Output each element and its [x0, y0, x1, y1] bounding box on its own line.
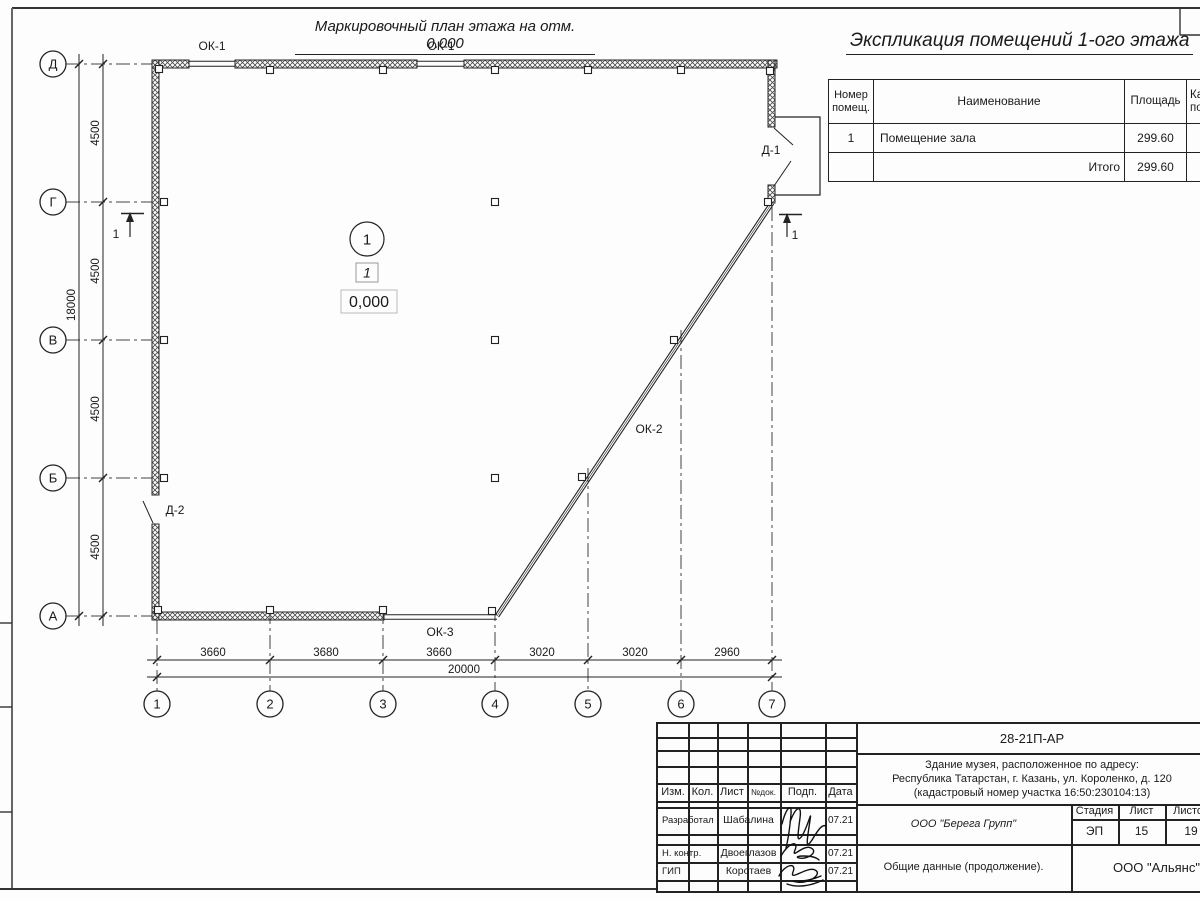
dim-text-3660: 3660	[200, 647, 226, 659]
plan-title-wrap: Маркировочный план этажа на отм. 0.000	[295, 18, 595, 55]
tb-line	[658, 737, 856, 739]
room-number: 1	[363, 232, 371, 249]
tb-address-line3: (кадастровый номер участка 16:50:230104:…	[914, 786, 1151, 800]
column	[492, 337, 499, 344]
exp-header-category-line2: по	[1190, 102, 1200, 115]
tb-stage-label: Стадия	[1071, 804, 1118, 819]
signature-ncontrol-gip	[773, 836, 829, 888]
tb-address: Здание музея, расположенное по адресу: Р…	[856, 753, 1200, 804]
element-labels: ОК-1 ОК-1 Д-1 Д-2 ОК-2 ОК-3	[166, 39, 781, 639]
window-ok2	[495, 202, 770, 615]
exp-header-area: Площадь	[1125, 80, 1187, 124]
tb-line	[658, 750, 856, 752]
axis-label-3: 3	[379, 697, 386, 712]
axis-label-B: Б	[49, 471, 58, 486]
column	[156, 66, 163, 73]
column	[767, 68, 774, 75]
exp-total-label: Итого	[874, 153, 1125, 181]
window-label-ok2: ОК-2	[636, 422, 663, 436]
column	[155, 607, 162, 614]
dim-text-20000: 20000	[448, 664, 480, 676]
tb-developer-org: ООО "Берега Групп"	[856, 804, 1071, 844]
dim-text-4500: 4500	[90, 258, 102, 284]
dim-text-2960: 2960	[714, 647, 740, 659]
dim-text-3660: 3660	[426, 647, 452, 659]
tb-name-ncontrol: Двоеглазов	[717, 844, 780, 862]
tb-date-developer: 07.21	[825, 807, 856, 834]
wall-left	[152, 524, 159, 620]
dim-text-18000: 18000	[66, 289, 78, 321]
exp-header-number-line2: помещ.	[832, 102, 870, 115]
tb-role-gip: ГИП	[660, 862, 719, 880]
signature-stroke	[779, 866, 823, 886]
dim-text-3020: 3020	[529, 647, 555, 659]
exp-total-blank	[829, 153, 874, 181]
column	[492, 67, 499, 74]
column	[161, 337, 168, 344]
tb-address-line2: Республика Татарстан, г. Казань, ул. Кор…	[892, 772, 1172, 786]
tb-doc-number: 28-21П-АР	[856, 724, 1200, 753]
column	[267, 67, 274, 74]
axis-label-4: 4	[491, 697, 498, 712]
tb-customer-org: ООО "Альянс"	[1071, 844, 1200, 891]
axis-lines	[66, 64, 772, 691]
tb-sheet-value: 15	[1118, 819, 1165, 844]
title-block: Изм. Кол. Лист №док. Подп. Дата Разработ…	[656, 722, 1200, 893]
column	[585, 67, 592, 74]
tb-doc-title: Общие данные (продолжение).	[856, 844, 1071, 891]
column	[380, 607, 387, 614]
signature-stroke	[781, 844, 819, 860]
vestibule-outline	[775, 117, 820, 195]
column	[579, 474, 586, 481]
dim-text-4500: 4500	[90, 396, 102, 422]
tb-date-gip: 07.21	[825, 862, 856, 880]
elevation-value: 0,000	[349, 294, 389, 311]
window-ok2	[499, 204, 774, 617]
explication-title-wrap: Экспликация помещений 1-ого этажа	[846, 30, 1200, 55]
door-label-d2: Д-2	[166, 503, 185, 517]
axis-label-2: 2	[266, 697, 273, 712]
section-number-left: 1	[113, 227, 120, 241]
axis-label-1: 1	[153, 697, 160, 712]
exp-total-area: 299.60	[1125, 153, 1187, 181]
exp-row-category	[1187, 124, 1200, 153]
windows	[189, 61, 774, 619]
tb-address-line1: Здание музея, расположенное по адресу:	[925, 758, 1139, 772]
column	[161, 475, 168, 482]
column	[161, 199, 168, 206]
axis-label-5: 5	[584, 697, 591, 712]
tb-line	[658, 766, 856, 768]
dim-text-3680: 3680	[313, 647, 339, 659]
exp-total-category	[1187, 153, 1200, 181]
tb-name-developer: Шабалина	[717, 807, 780, 834]
exp-header-category: Ка по	[1187, 80, 1200, 124]
wall-top	[235, 60, 417, 68]
column	[492, 475, 499, 482]
dim-text-3020: 3020	[622, 647, 648, 659]
tb-sheets-label: Листов	[1165, 804, 1200, 819]
axis-label-A: А	[49, 609, 58, 624]
wall-top	[464, 60, 777, 68]
exp-header-category-line1: Ка	[1190, 89, 1200, 102]
axis-label-V: В	[49, 333, 58, 348]
column	[765, 199, 772, 206]
axis-label-D: Д	[49, 57, 58, 72]
tb-name-gip: Коротаев	[717, 862, 780, 880]
window-ok2	[497, 203, 772, 616]
column	[678, 67, 685, 74]
tb-col-list: Лист	[717, 783, 747, 801]
exp-header-name: Наименование	[874, 80, 1125, 124]
room-markers: 1 1 0,000	[341, 222, 397, 313]
tb-col-kol: Кол.	[688, 783, 717, 801]
drawing-sheet: 18000 4500 4500 4500 4500 3660 3680 3660…	[0, 0, 1200, 900]
dimension-lines	[79, 54, 782, 677]
section-marks	[121, 212, 802, 237]
explication-table: Номер помещ. Наименование Площадь Ка по …	[828, 79, 1200, 182]
window-label-ok3: ОК-3	[427, 625, 454, 639]
exp-row-name: Помещение зала	[874, 124, 1125, 153]
tb-role-developer: Разработал	[660, 807, 719, 834]
axis-label-G: Г	[49, 195, 56, 210]
window-label-ok1a: ОК-1	[199, 39, 226, 53]
floor-type-number: 1	[363, 265, 371, 281]
explication-title: Экспликация помещений 1-ого этажа	[846, 30, 1193, 55]
tb-role-ncontrol: Н. контр.	[660, 844, 719, 862]
doors	[143, 117, 820, 523]
door-leaf-d1-lower	[774, 161, 791, 186]
column	[267, 607, 274, 614]
plan-title: Маркировочный план этажа на отм. 0.000	[295, 18, 595, 55]
exp-header-number-line1: Номер	[834, 89, 868, 102]
axis-label-6: 6	[677, 697, 684, 712]
column	[489, 608, 496, 615]
dim-text-4500: 4500	[90, 120, 102, 146]
tb-sheet-label: Лист	[1118, 804, 1165, 819]
tb-col-izm: Изм.	[658, 783, 688, 801]
axis-label-7: 7	[768, 697, 775, 712]
wall-left	[152, 60, 159, 495]
exp-header-number: Номер помещ.	[829, 80, 874, 124]
dimension-ticks	[75, 60, 776, 681]
tb-col-data: Дата	[825, 783, 856, 801]
tb-stage-value: ЭП	[1071, 819, 1118, 844]
tb-date-ncontrol: 07.21	[825, 844, 856, 862]
door-leaf-d2	[143, 501, 153, 523]
exp-row-area: 299.60	[1125, 124, 1187, 153]
column	[380, 67, 387, 74]
column	[492, 199, 499, 206]
tb-sheets-value: 19	[1165, 819, 1200, 844]
door-label-d1: Д-1	[762, 143, 781, 157]
exp-row-number: 1	[829, 124, 874, 153]
section-number-right: 1	[792, 228, 799, 242]
dim-text-4500: 4500	[90, 534, 102, 560]
column	[671, 337, 678, 344]
